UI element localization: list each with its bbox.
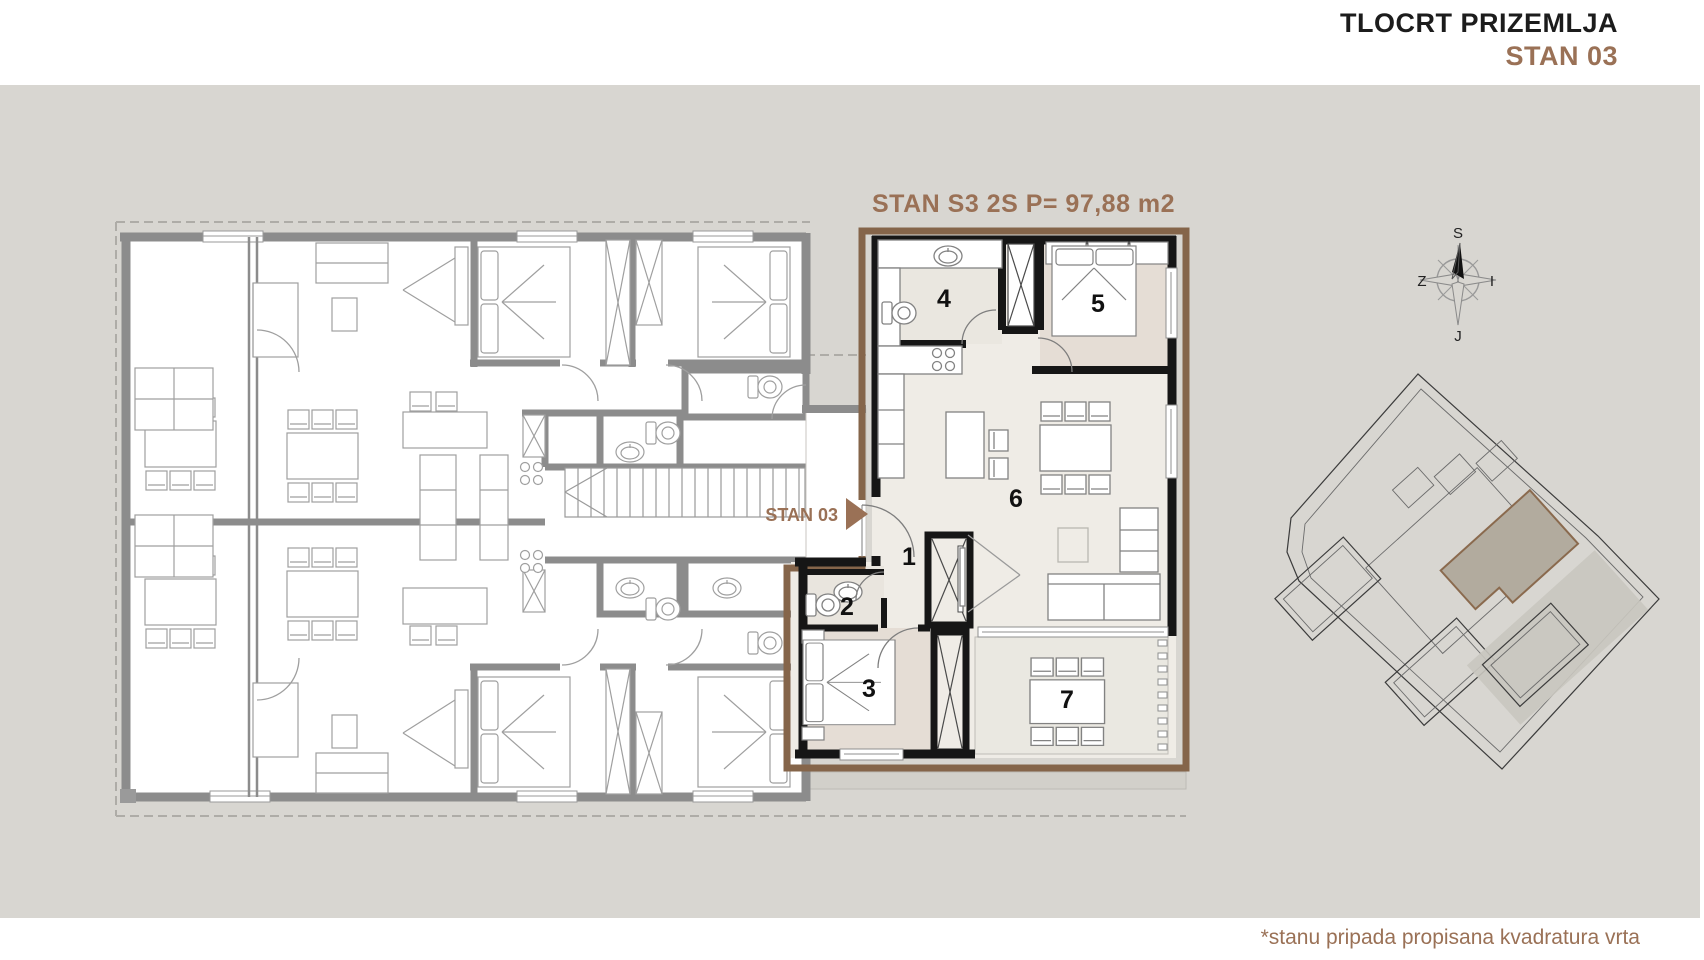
left-building — [120, 231, 806, 803]
entrance-corridor — [802, 409, 866, 568]
entrance-label: STAN 03 — [765, 505, 838, 525]
bedroom-3-furniture — [802, 630, 895, 740]
sidewalk-strip — [787, 772, 1186, 789]
floor-plan-drawing: 1 2 3 4 5 6 7 STAN S3 2S P= 97,88 m2 STA… — [0, 85, 1700, 918]
header: TLOCRT PRIZEMLJA STAN 03 — [0, 0, 1704, 85]
apartment-title: STAN S3 2S P= 97,88 m2 — [872, 190, 1175, 218]
compass-west-label: Z — [1417, 273, 1426, 290]
room-7-label: 7 — [1060, 686, 1074, 714]
compass-east-label: I — [1490, 273, 1494, 290]
footer-note: *stanu pripada propisana kvadratura vrta — [1261, 926, 1640, 950]
plan-canvas: 1 2 3 4 5 6 7 STAN S3 2S P= 97,88 m2 STA… — [0, 85, 1700, 918]
room-2-label: 2 — [840, 593, 854, 621]
room-4-label: 4 — [937, 285, 951, 313]
page-subtitle: STAN 03 — [1340, 40, 1618, 73]
garden-boundary-dashes — [1158, 640, 1167, 750]
room-6-label: 6 — [1009, 485, 1023, 513]
building-corner-marker — [120, 789, 136, 803]
compass-north-label: S — [1453, 225, 1463, 242]
page-title: TLOCRT PRIZEMLJA — [1340, 7, 1618, 40]
site-plan — [1274, 374, 1659, 790]
room-5-label: 5 — [1091, 290, 1105, 318]
dining-set — [1040, 402, 1111, 494]
room-1-label: 1 — [902, 543, 916, 571]
floor-plan-page: TLOCRT PRIZEMLJA STAN 03 — [0, 0, 1704, 960]
compass-icon: S J Z I — [1417, 225, 1496, 345]
room-3-label: 3 — [862, 675, 876, 703]
compass-south-label: J — [1454, 328, 1462, 345]
footer: *stanu pripada propisana kvadratura vrta — [0, 918, 1704, 960]
